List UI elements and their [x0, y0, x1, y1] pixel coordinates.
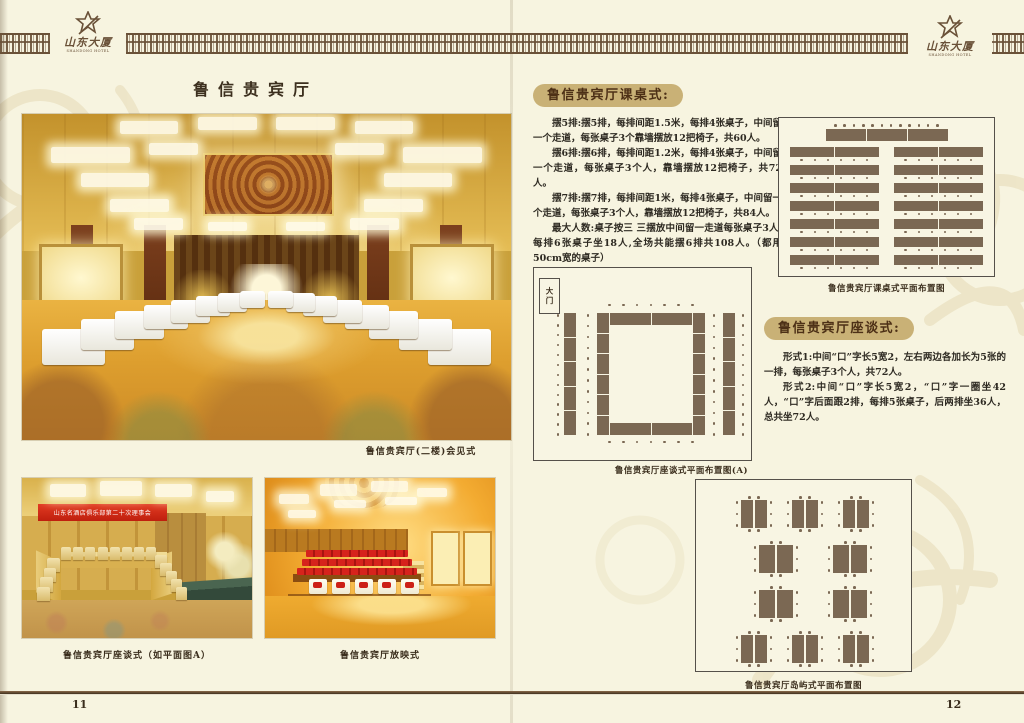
front-row-sofa — [401, 579, 419, 594]
chair-dot — [677, 441, 680, 444]
chair-dot — [650, 441, 653, 444]
chair-dot — [840, 249, 843, 252]
island-row — [734, 495, 911, 533]
table-segment — [867, 129, 907, 141]
chair-dot — [800, 267, 803, 270]
table-cluster — [785, 495, 825, 533]
classroom-row — [790, 219, 879, 235]
table-segment — [777, 590, 793, 618]
ceiling-light-panel — [384, 173, 452, 188]
page-number-right: 12 — [946, 698, 961, 711]
table-segment — [894, 237, 938, 247]
table-bar — [723, 313, 735, 435]
classroom-row — [790, 183, 879, 199]
table-segment — [833, 545, 849, 573]
table-segment — [894, 165, 938, 175]
classroom-row — [894, 183, 983, 199]
chair-dot — [713, 379, 716, 382]
photo-screening-style — [265, 478, 495, 638]
chair-dot — [866, 195, 869, 198]
chair-dot — [828, 569, 831, 572]
table-segment — [790, 237, 834, 247]
chair-dot — [859, 496, 862, 499]
chair-dot — [622, 304, 625, 307]
chair-dots — [741, 528, 767, 533]
chair-dot — [770, 524, 773, 527]
table-segment — [835, 237, 879, 247]
chair-dot — [853, 619, 856, 622]
chair-dot — [742, 374, 745, 377]
table-cluster — [734, 495, 774, 533]
ceiling-light-panel — [155, 484, 192, 497]
chair-dot — [787, 524, 790, 527]
chair-dot — [557, 354, 560, 357]
table-segment — [564, 411, 576, 435]
table-segment — [693, 395, 705, 415]
front-row-sofa — [309, 579, 327, 594]
table-segment — [939, 201, 983, 211]
chair-dot — [587, 347, 590, 350]
chair-dot — [713, 336, 716, 339]
table-segment — [894, 219, 938, 229]
conference-chair — [73, 547, 83, 560]
chair-dots — [790, 175, 879, 181]
chair-dot — [970, 213, 973, 216]
chair-dot — [779, 574, 782, 577]
table-segment — [908, 129, 948, 141]
ceiling-light-panel — [100, 481, 141, 495]
chair-dot — [742, 384, 745, 387]
chair-dot — [677, 304, 680, 307]
chair-dot — [736, 636, 739, 639]
table-segment — [792, 500, 804, 528]
classroom-row — [894, 219, 983, 235]
banner-text: 山东名酒店俱乐部第二十次理事会 — [38, 504, 167, 522]
ceiling-light-panel — [81, 173, 149, 188]
table-segment — [790, 255, 834, 265]
chair-dots — [790, 211, 879, 217]
chair-dot — [853, 124, 856, 127]
chair-dot — [814, 213, 817, 216]
chair-dot — [866, 213, 869, 216]
chair-dot — [828, 603, 831, 606]
red-cushion — [336, 582, 345, 588]
chair-dots — [870, 500, 876, 528]
classroom-row — [894, 201, 983, 217]
chair-dot — [918, 124, 921, 127]
table-segment — [693, 375, 705, 395]
chair-dot — [587, 368, 590, 371]
table-segment — [564, 338, 576, 362]
table-bar — [741, 635, 767, 663]
chair-dot — [587, 412, 590, 415]
chair-dots — [785, 500, 791, 528]
chair-dot — [853, 541, 856, 544]
chair-dot — [742, 403, 745, 406]
conference-chair — [176, 587, 188, 601]
chair-dot — [866, 267, 869, 270]
classroom-row — [790, 147, 879, 163]
chair-dot — [799, 529, 802, 532]
chair-dot — [853, 213, 856, 216]
chair-dots — [894, 229, 983, 235]
chair-dot — [557, 423, 560, 426]
table-bar — [894, 255, 983, 265]
chair-dots — [768, 500, 774, 528]
chair-dot — [918, 159, 921, 162]
table-segment — [894, 255, 938, 265]
table-segment — [790, 183, 834, 193]
chair-dot — [827, 159, 830, 162]
table-bar — [894, 147, 983, 157]
table-segment — [843, 500, 855, 528]
chair-dot — [557, 394, 560, 397]
chair-dots — [836, 635, 842, 663]
chair-dots — [894, 265, 983, 271]
chair-dot — [838, 501, 841, 504]
chair-dot — [770, 659, 773, 662]
table-bar — [610, 313, 692, 325]
chair-dot — [663, 304, 666, 307]
classroom-row — [790, 201, 879, 217]
chair-dot — [742, 423, 745, 426]
chair-dot — [908, 124, 911, 127]
chair-dot — [872, 501, 875, 504]
table-segment — [759, 545, 775, 573]
logo-subtitle: SHANDONG HOTEL — [916, 53, 984, 57]
chair-dot — [787, 513, 790, 516]
chair-dot — [840, 231, 843, 234]
table-cluster — [836, 495, 876, 533]
chair-dot — [828, 546, 831, 549]
front-row-sofa — [378, 579, 396, 594]
chair-dot — [800, 177, 803, 180]
chair-dots — [790, 229, 879, 235]
chair-dot — [853, 231, 856, 234]
chair-dot — [796, 614, 799, 617]
chair-dot — [871, 124, 874, 127]
table-segment — [693, 334, 705, 354]
chair-dot — [742, 394, 745, 397]
table-segment — [833, 590, 849, 618]
table-cluster — [785, 630, 825, 668]
chair-dot — [557, 364, 560, 367]
table-segment — [835, 201, 879, 211]
table-segment — [835, 183, 879, 193]
table-bar — [790, 183, 879, 193]
table-segment — [939, 255, 983, 265]
chair-dot — [853, 195, 856, 198]
chair-dot — [748, 664, 751, 667]
chair-dot — [557, 413, 560, 416]
chair-dot — [843, 124, 846, 127]
table-bar — [843, 635, 869, 663]
table-segment — [597, 395, 609, 415]
chair-dots — [768, 635, 774, 663]
chair-dot — [779, 619, 782, 622]
table-segment — [835, 255, 879, 265]
chair-dot — [840, 195, 843, 198]
table-segment — [564, 313, 576, 337]
chair-dot — [931, 177, 934, 180]
chair-dots — [868, 545, 874, 573]
chair-dot — [827, 249, 830, 252]
chair-dot — [748, 496, 751, 499]
chair-dot — [736, 648, 739, 651]
chair-dot — [770, 648, 773, 651]
table-segment — [777, 545, 793, 573]
chair-dot — [787, 648, 790, 651]
classroom-row — [790, 165, 879, 181]
chair-dot — [770, 574, 773, 577]
ceiling-light-panel — [149, 143, 198, 154]
chair-dot — [713, 422, 716, 425]
chair-dot — [787, 501, 790, 504]
chair-dots — [792, 528, 818, 533]
chair-dots — [785, 635, 791, 663]
chair-dot — [814, 177, 817, 180]
chair-dots — [711, 313, 717, 437]
table-segment — [597, 313, 609, 333]
ceiling-light-panel — [198, 117, 257, 130]
table-bar — [790, 165, 879, 175]
classroom-description: 摆5排:摆5排，每排间距1.5米，每排4张桌子，中间留一个走道，每张桌子3个靠墙… — [533, 116, 782, 266]
classroom-row — [894, 255, 983, 271]
chair-dot — [944, 159, 947, 162]
chair-dot — [742, 334, 745, 337]
chair-dot — [870, 558, 873, 561]
classroom-row — [894, 237, 983, 253]
door-label: 大门 — [539, 278, 560, 314]
chair-dot — [899, 124, 902, 127]
photo-ceiling-medallion — [203, 153, 334, 216]
table-segment — [790, 147, 834, 157]
star-icon — [75, 11, 101, 37]
chair-dot — [557, 403, 560, 406]
front-row-sofa — [332, 579, 350, 594]
page-title: 鲁信贵宾厅 — [118, 76, 393, 100]
chair-dot — [834, 124, 837, 127]
table-segment — [610, 423, 651, 435]
chair-dots — [828, 123, 946, 128]
chair-dot — [844, 541, 847, 544]
ceiling-light-panel — [50, 484, 87, 497]
chair-dots — [794, 545, 800, 573]
chair-dot — [770, 586, 773, 589]
paragraph: 形式2:中间“口”字长5宽2，“口”字一圈坐42人，“口”字后面跟2排，每排5张… — [764, 380, 1006, 425]
table-segment — [792, 635, 804, 663]
chair-dot — [853, 249, 856, 252]
chair-dot — [838, 524, 841, 527]
table-segment — [894, 183, 938, 193]
chair-dot — [866, 177, 869, 180]
chair-dot — [821, 524, 824, 527]
table-cluster — [826, 540, 874, 578]
chair-dot — [957, 267, 960, 270]
chair-dot — [944, 249, 947, 252]
ceiling-light-panel — [206, 491, 234, 502]
chair-dot — [587, 422, 590, 425]
chair-dot — [799, 496, 802, 499]
chair-dot — [779, 586, 782, 589]
chair-dot — [870, 614, 873, 617]
chair-dot — [587, 379, 590, 382]
conference-chair — [85, 547, 95, 560]
chair-dot — [838, 648, 841, 651]
chair-dot — [904, 213, 907, 216]
chair-dot — [713, 347, 716, 350]
chair-dot — [918, 231, 921, 234]
chair-dot — [754, 603, 757, 606]
chair-dots — [790, 157, 879, 163]
chair-dot — [800, 231, 803, 234]
conference-chair — [134, 547, 144, 560]
photo-a-caption: 鲁信贵宾厅座谈式（如平面图A） — [22, 648, 252, 661]
chair-dot — [713, 433, 716, 436]
table-bar — [826, 129, 948, 141]
chair-dot — [870, 546, 873, 549]
chair-dot — [859, 664, 862, 667]
chair-dot — [957, 231, 960, 234]
chair-dots — [752, 590, 758, 618]
island-row — [752, 540, 911, 578]
table-segment — [741, 500, 753, 528]
chair-dot — [838, 636, 841, 639]
chair-dot — [796, 569, 799, 572]
ceiling-light-panel — [110, 199, 169, 212]
table-bar — [759, 590, 793, 618]
chair-dot — [742, 354, 745, 357]
chair-dots — [792, 663, 818, 668]
chair-dot — [828, 614, 831, 617]
chair-dot — [796, 603, 799, 606]
chair-dot — [736, 513, 739, 516]
chair-dot — [918, 195, 921, 198]
chair-dot — [663, 441, 666, 444]
table-segment — [597, 334, 609, 354]
table-segment — [790, 219, 834, 229]
chair-dot — [587, 401, 590, 404]
chair-dot — [770, 619, 773, 622]
chair-dot — [904, 231, 907, 234]
table-segment — [564, 387, 576, 411]
chair-dots — [868, 590, 874, 618]
chair-dot — [587, 314, 590, 317]
classroom-diagram — [778, 117, 995, 277]
chair-dot — [808, 496, 811, 499]
chair-dot — [736, 524, 739, 527]
table-bar — [564, 313, 576, 435]
conference-chair — [37, 587, 50, 601]
chair-dot — [814, 267, 817, 270]
chair-dot — [821, 501, 824, 504]
chair-dot — [828, 558, 831, 561]
paragraph: 最大人数:桌子按三 三摆放中间留一走道每张桌子3人,每排6张桌子坐18人,全场共… — [533, 221, 782, 266]
classroom-row — [894, 165, 983, 181]
chair-dot — [970, 231, 973, 234]
chair-dot — [587, 325, 590, 328]
chair-dot — [736, 501, 739, 504]
table-bar — [693, 313, 705, 435]
chair-dot — [859, 529, 862, 532]
main-photo-meeting-hall — [22, 114, 511, 440]
table-cluster — [826, 585, 874, 623]
ceiling-light-panel — [120, 121, 179, 134]
main-photo-caption: 鲁信贵宾厅(二楼)会见式 — [328, 444, 514, 457]
chair-dot — [799, 664, 802, 667]
table-segment — [894, 147, 938, 157]
ceiling-light-panel — [279, 494, 309, 504]
table-segment — [806, 635, 818, 663]
chair-dot — [931, 159, 934, 162]
chair-dot — [931, 267, 934, 270]
classroom-column — [894, 147, 983, 271]
chair-dot — [770, 541, 773, 544]
ceiling-light-panel — [350, 218, 399, 229]
chair-dots — [597, 439, 705, 445]
table-segment — [851, 545, 867, 573]
table-bar — [790, 147, 879, 157]
chair-dot — [557, 344, 560, 347]
fret-border — [0, 33, 1024, 54]
section-heading-classroom: 鲁信贵宾厅课桌式: — [533, 84, 683, 107]
chair-dot — [840, 159, 843, 162]
chair-dot — [931, 213, 934, 216]
chair-dot — [866, 159, 869, 162]
head-table — [779, 118, 994, 141]
chair-dot — [859, 631, 862, 634]
table-segment — [723, 313, 735, 337]
chair-dots — [894, 211, 983, 217]
chair-dot — [808, 529, 811, 532]
chair-dot — [918, 177, 921, 180]
star-icon — [937, 15, 963, 41]
table-segment — [790, 201, 834, 211]
chair-dot — [814, 195, 817, 198]
chair-dot — [904, 195, 907, 198]
chair-dot — [608, 441, 611, 444]
chair-dot — [853, 177, 856, 180]
brochure-spread: 山东大厦 SHANDONG HOTEL 山东大厦 SHANDONG HOTEL … — [0, 0, 1024, 723]
chair-dot — [944, 231, 947, 234]
boardroom-diagram: 大门 — [533, 267, 752, 461]
chair-dot — [608, 304, 611, 307]
chair-dot — [636, 304, 639, 307]
table-segment — [755, 635, 767, 663]
chair-dot — [870, 603, 873, 606]
table-segment — [790, 165, 834, 175]
chair-dot — [814, 159, 817, 162]
chair-dot — [844, 574, 847, 577]
chair-dots — [763, 618, 789, 623]
ceiling-light-panel — [335, 143, 384, 154]
chair-dot — [557, 374, 560, 377]
table-segment — [723, 387, 735, 411]
chair-dot — [970, 159, 973, 162]
table-segment — [610, 313, 651, 325]
table-bar — [894, 165, 983, 175]
classroom-row — [790, 237, 879, 253]
chair-dot — [838, 659, 841, 662]
chair-dot — [557, 384, 560, 387]
chair-dot — [931, 231, 934, 234]
chair-dot — [757, 631, 760, 634]
ceiling-light-panel — [288, 510, 316, 518]
chair-dot — [587, 390, 590, 393]
chair-dot — [713, 401, 716, 404]
table-bar — [792, 635, 818, 663]
chair-dot — [838, 513, 841, 516]
